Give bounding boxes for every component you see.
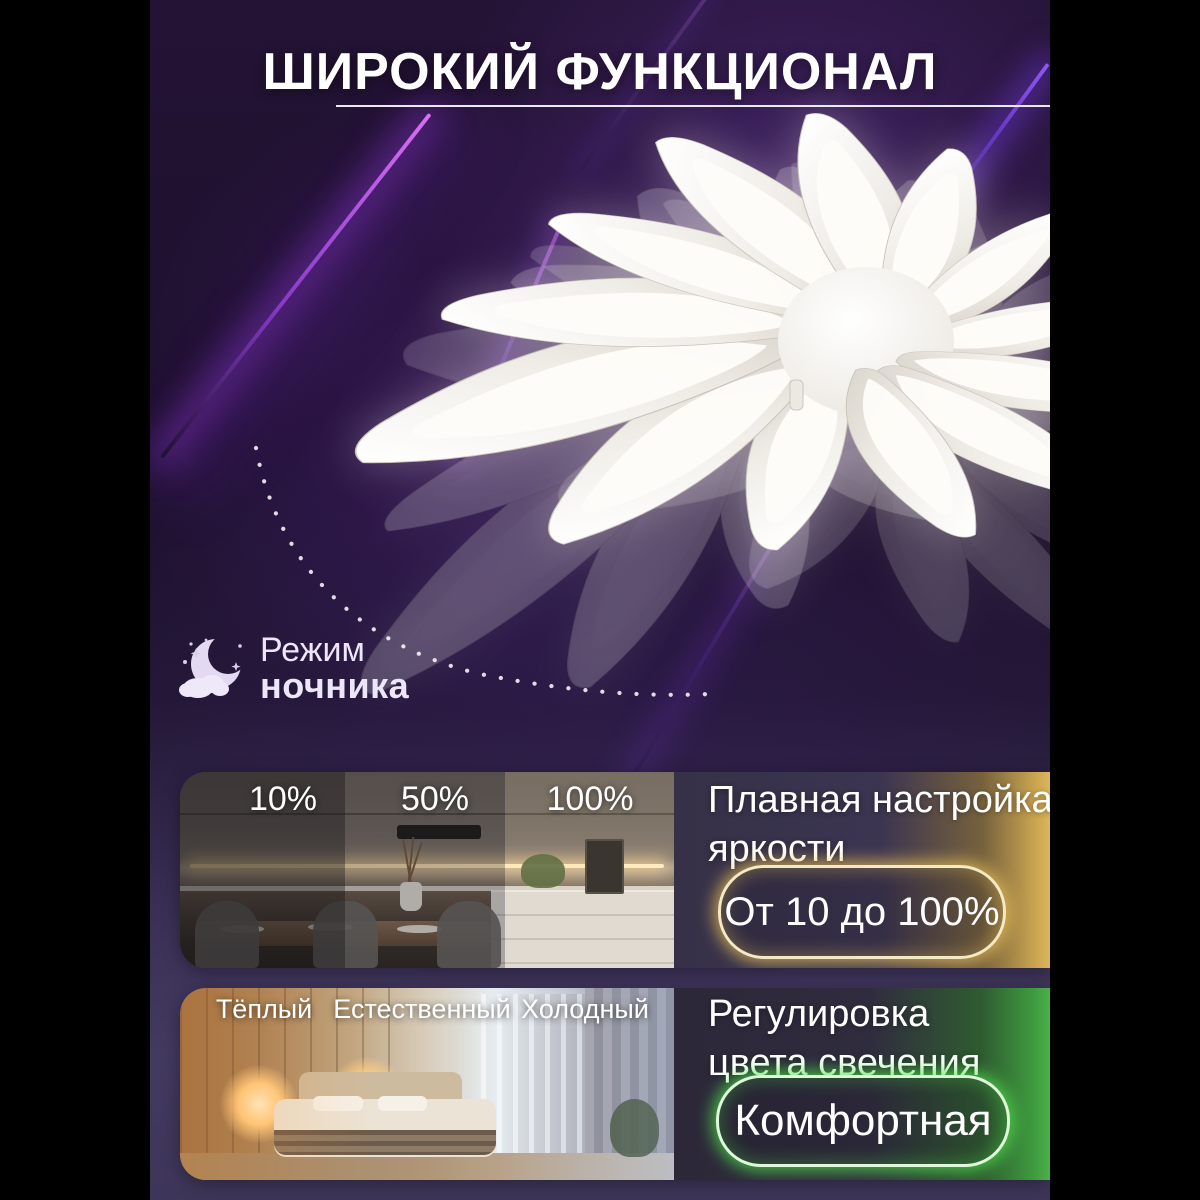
zone-label-cold: Холодный: [521, 994, 649, 1025]
light-beam: [459, 221, 564, 462]
night-mode-label-line1: Режим: [260, 633, 409, 668]
color-temp-panel: Регулировка цвета свечения Комфортная: [674, 988, 1050, 1180]
chandelier-ghost: [353, 27, 1050, 725]
brightness-heading: Плавная настройка яркости: [708, 776, 1050, 873]
light-beam: [160, 113, 432, 459]
night-mode-label-line2: ночника: [260, 668, 409, 705]
zone-label-warm: Тёплый: [216, 994, 312, 1025]
kitchen-photo: 10% 50% 100%: [180, 772, 674, 968]
zone-label-50: 50%: [401, 780, 469, 819]
zone-label-10: 10%: [249, 780, 317, 819]
canvas: { "title": { "text": "ШИРОКИЙ ФУНКЦИОНАЛ…: [0, 0, 1200, 1200]
brightness-panel: Плавная настройка яркости От 10 до 100%: [674, 772, 1050, 968]
brightness-range-badge: От 10 до 100%: [718, 865, 1006, 959]
zone-label-100: 100%: [547, 780, 634, 819]
title-underline: [336, 105, 1050, 107]
page-title: ШИРОКИЙ ФУНКЦИОНАЛ: [150, 42, 1050, 102]
bedroom-photo: Тёплый Естественный Холодный: [180, 988, 674, 1180]
moon-cloud-stars-icon: [176, 632, 250, 706]
zone-label-natural: Естественный: [333, 994, 511, 1025]
color-temp-section: Тёплый Естественный Холодный Регулировка…: [180, 988, 1050, 1180]
chandelier-hub: [778, 267, 954, 430]
color-temp-badge: Комфортная: [716, 1075, 1010, 1167]
product-card: ШИРОКИЙ ФУНКЦИОНАЛ Режим ночника: [150, 0, 1050, 1200]
night-mode-badge: Режим ночника: [176, 632, 409, 706]
color-temp-heading: Регулировка цвета свечения: [708, 990, 980, 1087]
brightness-section: 10% 50% 100% Плавная настройка яркости О…: [180, 772, 1050, 968]
light-beam: [622, 431, 842, 793]
